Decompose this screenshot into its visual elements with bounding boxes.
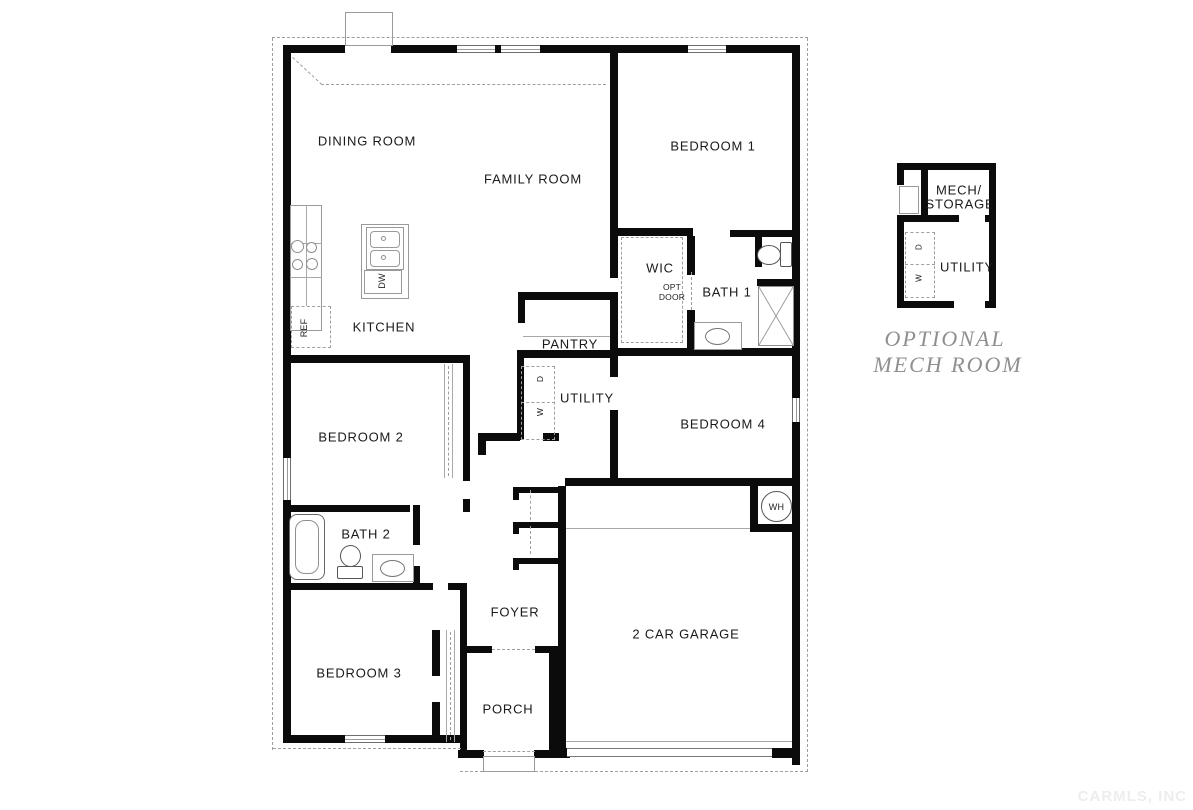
dashed-line <box>273 748 461 749</box>
detail-line <box>452 364 453 478</box>
wall-segment <box>897 163 996 170</box>
detail-line <box>446 630 447 742</box>
dishwasher-label: DW <box>377 273 387 288</box>
shower-icon <box>758 286 794 346</box>
wall-segment <box>610 292 618 351</box>
room-label-pantry: PANTRY <box>542 337 598 352</box>
wall-segment <box>513 522 519 534</box>
burner-icon <box>306 258 318 270</box>
room-label-dining: DINING ROOM <box>318 134 416 149</box>
wall-segment <box>610 53 618 228</box>
refrigerator-label: REF <box>299 319 309 338</box>
sink-icon <box>380 560 405 577</box>
detail-line <box>566 741 792 742</box>
wall-segment <box>726 45 800 53</box>
wall-segment <box>535 646 558 653</box>
inset-caption-line-2: MECH ROOM <box>873 352 1022 378</box>
sink-icon <box>705 328 730 345</box>
inset-dryer-label: D <box>915 244 924 250</box>
wall-segment <box>283 355 470 363</box>
wall-segment <box>463 363 470 481</box>
garage-door <box>567 748 772 757</box>
fixture-outline <box>345 12 393 46</box>
dashed-outline <box>905 232 935 298</box>
wall-segment <box>432 630 440 676</box>
room-label-wic: WIC <box>646 261 674 276</box>
room-label-family: FAMILY ROOM <box>484 172 582 187</box>
wall-segment <box>513 558 519 570</box>
room-label-bedroom4: BEDROOM 4 <box>680 417 765 432</box>
wall-segment <box>283 583 433 590</box>
dashed-line <box>691 272 692 310</box>
window <box>283 458 291 500</box>
room-label-bath1: BATH 1 <box>702 285 751 300</box>
burner-icon <box>291 240 304 253</box>
wall-segment <box>985 301 996 308</box>
window <box>688 45 726 53</box>
wall-segment <box>897 163 904 185</box>
wall-segment <box>897 301 954 308</box>
burner-icon <box>381 236 386 241</box>
inset-caption-line-1: OPTIONAL <box>884 326 1005 352</box>
dashed-line <box>530 526 531 554</box>
dashed-line <box>448 366 449 476</box>
opt-door-label-1: OPT <box>663 282 681 292</box>
wall-segment <box>757 279 794 286</box>
wall-segment <box>283 505 410 512</box>
wall-segment <box>283 735 345 743</box>
wall-segment <box>730 230 792 237</box>
wall-segment <box>432 702 440 742</box>
water-heater-label: WH <box>769 502 785 512</box>
watermark: CARMLS, INC <box>1078 788 1187 805</box>
wall-segment <box>610 356 618 377</box>
wall-segment <box>610 410 618 483</box>
room-label-bath2: BATH 2 <box>341 527 390 542</box>
fixture-outline <box>899 186 919 214</box>
detail-line <box>444 364 445 478</box>
wall-segment <box>467 646 492 653</box>
detail-line <box>454 630 455 742</box>
window <box>501 45 540 53</box>
wall-segment <box>513 487 558 493</box>
wall-segment <box>485 433 520 441</box>
burner-icon <box>306 242 317 253</box>
room-label-utility: UTILITY <box>560 391 614 406</box>
wall-segment <box>518 292 525 323</box>
toilet-tank-icon <box>337 566 363 579</box>
burner-icon <box>292 259 303 270</box>
room-label-kitchen: KITCHEN <box>353 320 416 335</box>
toilet-tank-icon <box>780 242 792 267</box>
dryer-label: D <box>535 376 545 382</box>
fixture-outline <box>483 756 535 772</box>
detail-line <box>306 205 307 306</box>
wall-segment <box>687 236 695 275</box>
opt-door-label-2: DOOR <box>659 292 685 302</box>
wall-segment <box>897 215 904 307</box>
room-label-foyer: FOYER <box>491 605 540 620</box>
wall-segment <box>513 558 558 564</box>
dashed-line <box>450 632 451 740</box>
wall-segment <box>897 215 959 222</box>
floor-plan: WH DINING ROOM FAMILY ROOM BEDROOM 1 KIT… <box>0 0 1193 810</box>
wall-segment <box>391 45 457 53</box>
wall-segment <box>540 45 688 53</box>
dashed-outline <box>291 306 331 348</box>
wall-segment <box>750 524 795 532</box>
dashed-line <box>460 771 808 772</box>
wall-segment <box>518 292 612 300</box>
window <box>792 398 800 422</box>
inset-mech-storage-label-2: STORAGE <box>926 197 995 212</box>
dashed-line <box>807 38 808 772</box>
wall-segment <box>610 228 693 236</box>
wall-segment <box>792 422 800 765</box>
inset-mech-storage-label-1: MECH/ <box>936 183 982 198</box>
toilet-icon <box>340 545 361 567</box>
water-heater-icon: WH <box>761 491 792 522</box>
wall-segment <box>460 583 467 753</box>
wall-segment <box>610 236 618 278</box>
wall-segment <box>513 487 519 500</box>
wall-segment <box>558 486 566 758</box>
washer-label: W <box>535 408 545 416</box>
toilet-icon <box>757 245 781 265</box>
burner-icon <box>381 255 386 260</box>
dashed-line <box>321 84 606 85</box>
detail-line <box>566 528 750 529</box>
wall-segment <box>458 750 484 758</box>
wall-segment <box>478 433 486 455</box>
wall-segment <box>513 522 558 528</box>
inset-utility-label: UTILITY <box>940 260 994 275</box>
ceiling-break-diagonal <box>292 57 322 85</box>
room-label-porch: PORCH <box>483 702 534 717</box>
wall-segment <box>772 748 800 758</box>
dashed-line <box>272 37 808 38</box>
dashed-line <box>530 490 531 520</box>
room-label-garage: 2 CAR GARAGE <box>632 627 739 642</box>
wall-segment <box>565 478 795 486</box>
inset-washer-label: W <box>915 274 924 282</box>
wall-segment <box>283 45 345 53</box>
dashed-line <box>483 751 535 752</box>
wall-segment <box>413 505 420 545</box>
dashed-line <box>492 649 535 650</box>
room-label-bedroom3: BEDROOM 3 <box>316 666 401 681</box>
wall-segment <box>989 163 996 308</box>
window <box>457 45 495 53</box>
wall-segment <box>549 653 558 753</box>
window <box>345 735 385 743</box>
wall-segment <box>750 486 758 526</box>
room-label-bedroom1: BEDROOM 1 <box>670 139 755 154</box>
wall-segment <box>463 499 470 512</box>
room-label-bedroom2: BEDROOM 2 <box>318 430 403 445</box>
dashed-line <box>272 38 273 750</box>
bathtub-inner <box>295 520 319 574</box>
